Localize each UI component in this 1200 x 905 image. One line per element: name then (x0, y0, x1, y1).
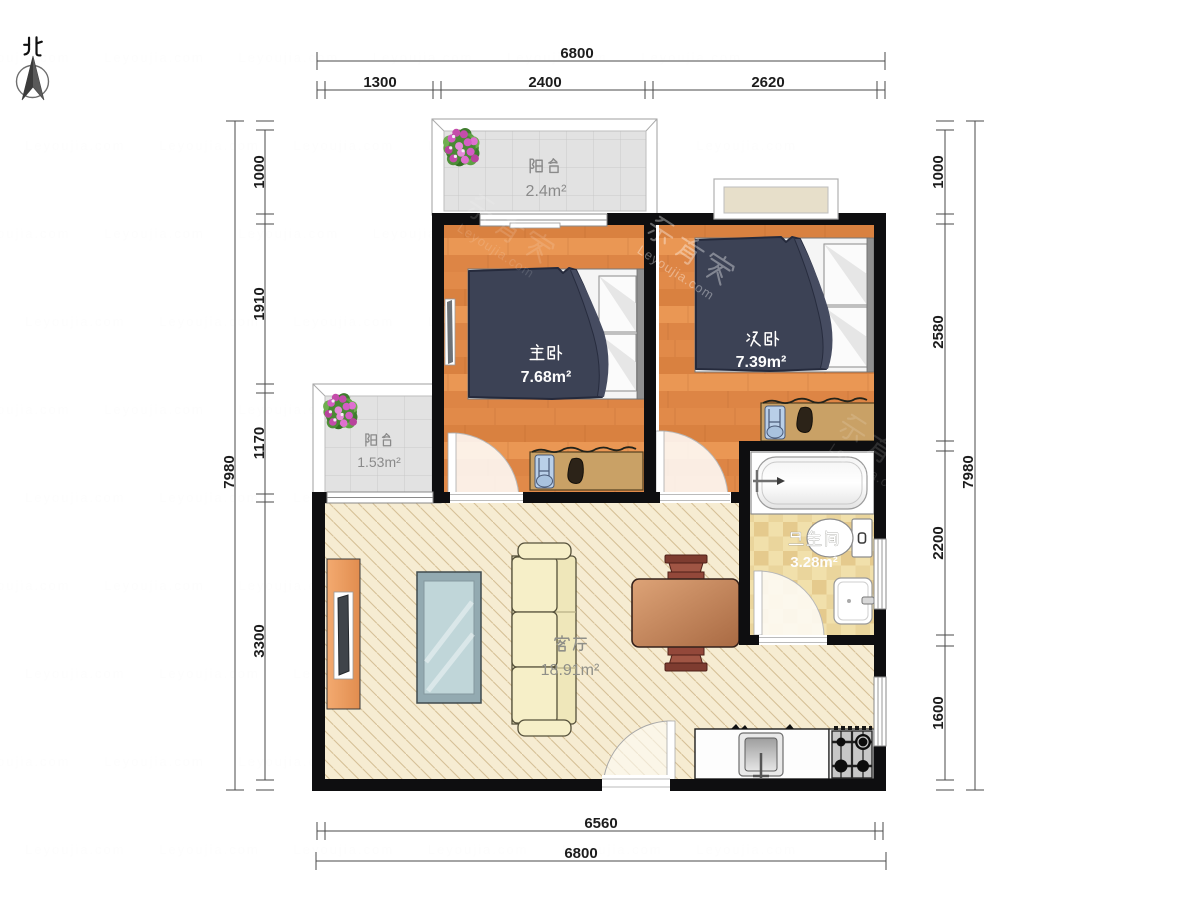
svg-text:2200: 2200 (930, 526, 947, 559)
svg-text:7980: 7980 (221, 455, 238, 488)
svg-text:Leyoujia.com Leyoujia.com: Leyoujia.com Leyoujia.com Leyoujia.com L… (25, 842, 797, 857)
svg-text:1170: 1170 (251, 427, 268, 460)
svg-text:2580: 2580 (930, 315, 947, 348)
svg-text:Leyoujia.com Leyoujia.com: Leyoujia.com Leyoujia.com Leyoujia.com L… (25, 138, 797, 153)
svg-text:18.91m²: 18.91m² (541, 662, 600, 679)
svg-text:2620: 2620 (751, 74, 784, 91)
svg-text:1000: 1000 (930, 155, 947, 188)
svg-text:1.53m²: 1.53m² (357, 454, 401, 470)
svg-text:6560: 6560 (584, 815, 617, 832)
svg-text:1600: 1600 (930, 696, 947, 729)
svg-text:2400: 2400 (528, 74, 561, 91)
svg-text:6800: 6800 (560, 45, 593, 62)
svg-text:1300: 1300 (363, 74, 396, 91)
svg-text:1910: 1910 (251, 287, 268, 320)
svg-text:Leyoujia.com Leyoujia.com: Leyoujia.com Leyoujia.com Leyoujia.com L… (0, 50, 742, 65)
svg-text:2.4m²: 2.4m² (526, 183, 568, 200)
svg-text:7.39m²: 7.39m² (736, 354, 787, 371)
svg-text:3.28m²: 3.28m² (790, 554, 838, 571)
svg-text:6800: 6800 (564, 845, 597, 862)
svg-text:1000: 1000 (251, 155, 268, 188)
svg-text:7980: 7980 (960, 455, 977, 488)
svg-text:3300: 3300 (251, 624, 268, 657)
svg-text:7.68m²: 7.68m² (521, 369, 572, 386)
